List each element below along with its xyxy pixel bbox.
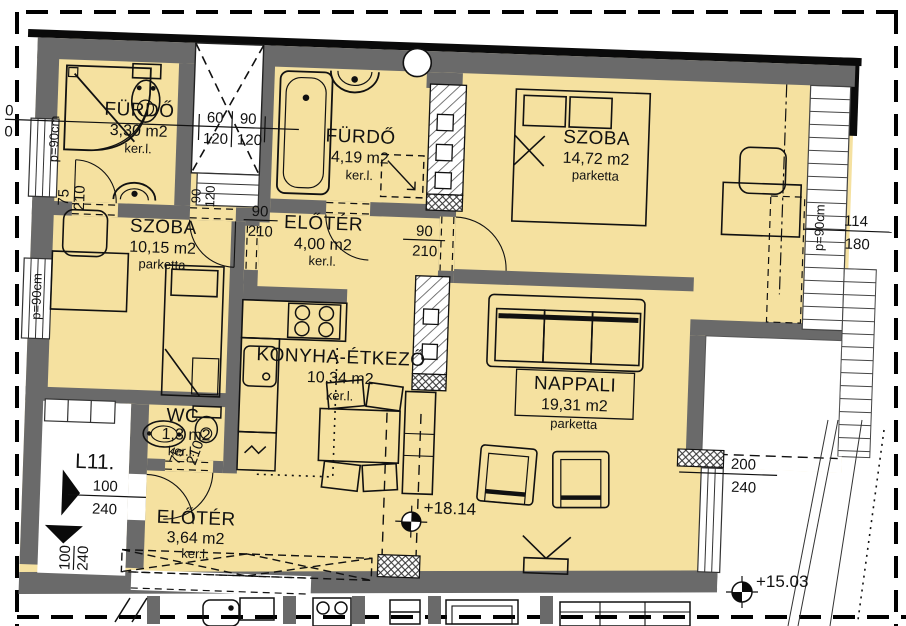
elevation-terrace-label: +15.03	[756, 572, 808, 591]
dim-clipped-a: 0	[5, 102, 14, 119]
room-label: FÜRDŐ	[325, 124, 396, 148]
dim-terrace-door-h: 240	[731, 479, 757, 497]
column-icon	[403, 48, 432, 77]
room-floor: ker.l.	[345, 167, 373, 183]
dim-door-d-h: 210	[71, 185, 89, 211]
wall-cap-crosshatch-1	[677, 449, 724, 468]
room-area: 3,30 m2	[110, 122, 168, 141]
dim-door-a-w: 90	[251, 203, 268, 221]
room-label: ELŐTÉR	[284, 211, 364, 236]
room-area: 1,3 m2	[161, 426, 211, 445]
room-label: ELŐTÉR	[156, 506, 236, 531]
hatched-shaft-upper	[426, 84, 466, 211]
room-label: FÜRDŐ	[104, 98, 175, 122]
dim-window-right-h: 180	[844, 236, 870, 254]
floorplan-drawing: FÜRDŐ 3,30 m2 ker.l. FÜRDŐ 4,19 m2 ker.l…	[0, 0, 906, 626]
parapet-label-2: p=90cm	[28, 273, 45, 320]
dim-shaft-120a: 120	[203, 130, 229, 148]
parapet-label-3: p=90cm	[811, 204, 828, 251]
dim-entry-h: 240	[92, 501, 118, 519]
room-floor: ker.l.	[124, 140, 152, 156]
outdoor-stairs	[838, 269, 877, 458]
dim-shaft-90: 90	[240, 110, 257, 128]
dim-door-a-h: 210	[247, 223, 273, 241]
dim-door-d-w: 75	[55, 189, 73, 206]
floorplan-page: { "plan": { "unit": "L11.", "rooms": [ {…	[0, 0, 906, 626]
dim-window-right-w: 114	[844, 213, 869, 231]
room-label: SZOBA	[563, 127, 631, 150]
dim-entry-w-rot: 100	[56, 545, 74, 571]
dim-entry-h-rot: 240	[74, 545, 92, 571]
room-label: NAPPALI	[534, 373, 617, 397]
room-area: 4,00 m2	[294, 235, 352, 254]
dim-shaft-60: 60	[207, 109, 224, 127]
dim-shaft-120b: 120	[237, 131, 263, 149]
room-label: SZOBA	[130, 216, 198, 239]
dim-door-b-w: 90	[416, 223, 433, 241]
stairwell-lockers	[45, 399, 116, 423]
dim-door-b-h: 210	[412, 243, 438, 261]
room-floor: parketta	[572, 167, 620, 184]
room-area: 19,31 m2	[541, 396, 608, 415]
wall-cap-crosshatch-2	[377, 555, 420, 578]
room-area: 4,19 m2	[331, 149, 389, 168]
dim-door-c-h: 120	[202, 185, 218, 207]
hatched-shaft-kitchen	[412, 276, 450, 391]
apartment-plan: FÜRDŐ 3,30 m2 ker.l. FÜRDŐ 4,19 m2 ker.l…	[0, 28, 898, 624]
elevation-living-label: +18.14	[423, 498, 476, 519]
parapet-label-1: p=90cm	[46, 115, 63, 162]
neighbor-unit-below	[115, 596, 690, 626]
room-floor: parketta	[138, 256, 186, 273]
dim-clipped-b: 0	[4, 123, 13, 140]
room-area: 10,34 m2	[307, 369, 374, 388]
room-floor: ker.l.	[181, 546, 209, 562]
dim-entry-w: 100	[92, 478, 118, 496]
room-floor: parketta	[550, 415, 598, 432]
dim-terrace-door-w: 200	[731, 456, 757, 474]
unit-label: L11.	[75, 450, 115, 474]
terrace-recess	[702, 336, 842, 459]
room-floor: ker.l.	[308, 253, 336, 269]
room-label: WC	[166, 405, 199, 427]
room-floor: ker.l.	[326, 388, 354, 404]
